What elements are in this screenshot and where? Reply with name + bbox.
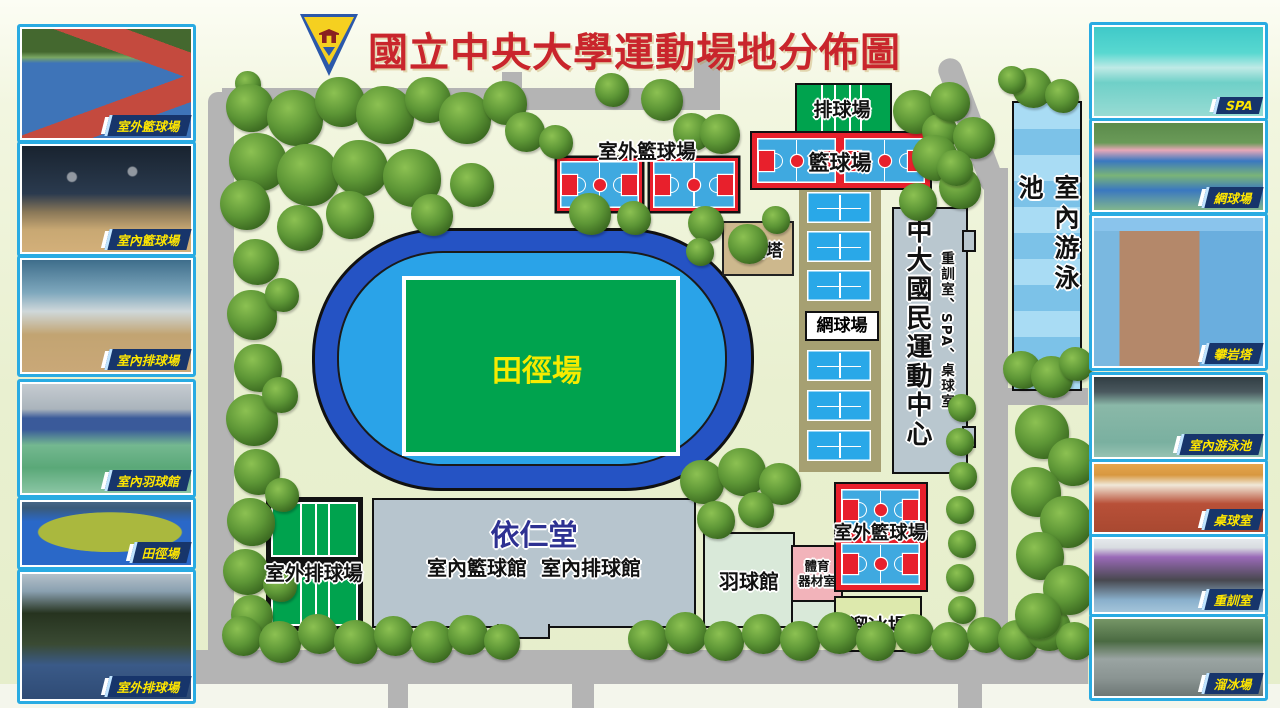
sports-center-rooms-label: 重訓室、SPA、桌球室: [936, 251, 956, 410]
south-road-stub-1: [388, 682, 408, 708]
photo-indoor-volleyball: 室內排球場: [17, 255, 196, 377]
tree-icon: [265, 278, 299, 312]
tree-icon: [948, 596, 976, 624]
photo-label: 室內排球場: [105, 349, 192, 370]
yi-ren-hall-label: 依仁堂: [374, 512, 694, 554]
sports-center-label: 中大國民運動中心: [899, 217, 936, 449]
photo-climbing-tower: 攀岩塔: [1089, 213, 1268, 371]
tree-icon: [894, 614, 934, 654]
tree-icon: [817, 612, 859, 654]
tree-icon: [569, 193, 611, 235]
tree-icon: [937, 150, 973, 186]
tree-icon: [374, 616, 414, 656]
tree-icon: [277, 144, 339, 206]
badminton-hall-label: 羽球館: [705, 566, 793, 595]
photo-tennis: 網球場: [1089, 118, 1268, 215]
photo-label: 網球場: [1202, 187, 1264, 208]
tree-icon: [946, 564, 974, 592]
tree-icon: [946, 496, 974, 524]
tree-icon: [946, 428, 974, 456]
photo-label: 重訓室: [1202, 589, 1264, 610]
tree-icon: [259, 621, 301, 663]
tree-icon: [262, 377, 298, 413]
campus-sports-map: 田徑場 排球場 室外籃球場 籃球場 攀岩塔 網球場 中大國民運動中心 重訓室: [0, 0, 1280, 708]
tree-icon: [220, 180, 270, 230]
tree-icon: [899, 183, 937, 221]
photo-label: 室內籃球場: [105, 229, 192, 250]
tree-icon: [1059, 347, 1093, 381]
badminton-hall-building: 羽球館: [703, 532, 795, 628]
tree-icon: [265, 478, 299, 512]
photo-label: 室內游泳池: [1177, 434, 1264, 455]
tree-icon: [641, 79, 683, 121]
photo-table-tennis: 桌球室: [1089, 459, 1268, 537]
tree-icon: [411, 194, 453, 236]
tree-icon: [334, 620, 378, 664]
page-title: 國立中央大學運動場地分佈圖: [368, 20, 913, 78]
tree-icon: [686, 238, 714, 266]
tree-icon: [704, 621, 744, 661]
photo-outdoor-basketball: 室外籃球場: [17, 24, 196, 143]
tree-icon: [450, 163, 494, 207]
photo-label: SPA: [1213, 97, 1263, 114]
photo-label: 田徑場: [130, 542, 192, 563]
tree-icon: [448, 615, 488, 655]
tree-icon: [298, 614, 338, 654]
tree-icon: [949, 462, 977, 490]
tree-icon: [948, 530, 976, 558]
tree-icon: [998, 66, 1026, 94]
photo-weight-room: 重訓室: [1089, 534, 1268, 617]
photo-spa: SPA: [1089, 22, 1268, 121]
tree-icon: [762, 206, 790, 234]
photo-label: 室內羽球館: [105, 470, 192, 491]
tree-icon: [233, 239, 279, 285]
photo-label: 室外排球場: [105, 676, 192, 697]
tree-icon: [1045, 79, 1079, 113]
east-road: [984, 168, 1008, 660]
tree-icon: [930, 82, 970, 122]
photo-track-field: 田徑場: [17, 497, 196, 570]
tree-icon: [948, 394, 976, 422]
tree-icon: [738, 492, 774, 528]
outdoor-basketball-north-label: 室外籃球場: [586, 135, 708, 164]
sports-center-wing-north: [962, 230, 976, 252]
track-field-label: 田徑場: [457, 346, 617, 390]
tree-icon: [856, 621, 896, 661]
photo-label: 攀岩塔: [1202, 343, 1264, 364]
tree-icon: [718, 448, 766, 496]
photo-skating-rink: 溜冰場: [1089, 614, 1268, 701]
photo-label: 溜冰場: [1202, 673, 1264, 694]
photo-label: 室外籃球場: [105, 115, 192, 136]
tree-icon: [742, 614, 782, 654]
tree-icon: [484, 624, 520, 660]
basketball-court-label: 籃球場: [782, 147, 898, 177]
ncu-emblem-icon: [300, 14, 358, 76]
tree-icon: [595, 73, 629, 107]
photo-indoor-badminton: 室內羽球館: [17, 379, 196, 498]
tree-icon: [226, 84, 274, 132]
photo-indoor-basketball: 室內籃球場: [17, 141, 196, 257]
yi-ren-hall-sub-label: 室內籃球館 室內排球館: [374, 552, 694, 581]
tree-icon: [665, 612, 707, 654]
outdoor-volleyball-label: 室外排球場: [252, 557, 376, 586]
tree-icon: [617, 201, 651, 235]
tree-icon: [326, 191, 374, 239]
indoor-pool-label: 室內游泳池: [1011, 175, 1083, 318]
tree-icon: [222, 616, 262, 656]
tree-icon: [628, 620, 668, 660]
photo-label: 桌球室: [1202, 509, 1264, 530]
tennis-court-label: 網球場: [805, 311, 879, 341]
photo-indoor-pool: 室內游泳池: [1089, 372, 1268, 462]
tree-icon: [780, 621, 820, 661]
yi-ren-hall-building: 依仁堂 室內籃球館 室內排球館: [372, 498, 696, 628]
tree-icon: [697, 501, 735, 539]
south-road-stub-3: [958, 682, 982, 708]
tree-icon: [277, 205, 323, 251]
tree-icon: [539, 125, 573, 159]
tree-icon: [728, 224, 768, 264]
tree-icon: [931, 622, 969, 660]
south-road-stub-2: [572, 682, 594, 708]
outdoor-basketball-south-label: 室外籃球場: [824, 519, 936, 545]
outdoor-basketball-court-2: [650, 158, 738, 211]
tree-icon: [688, 206, 724, 242]
volleyball-court-label: 排球場: [797, 95, 887, 122]
tree-icon: [332, 140, 388, 196]
tree-icon: [1015, 593, 1061, 639]
photo-outdoor-volleyball: 室外排球場: [17, 569, 196, 704]
tree-icon: [411, 621, 453, 663]
tree-icon: [227, 498, 275, 546]
